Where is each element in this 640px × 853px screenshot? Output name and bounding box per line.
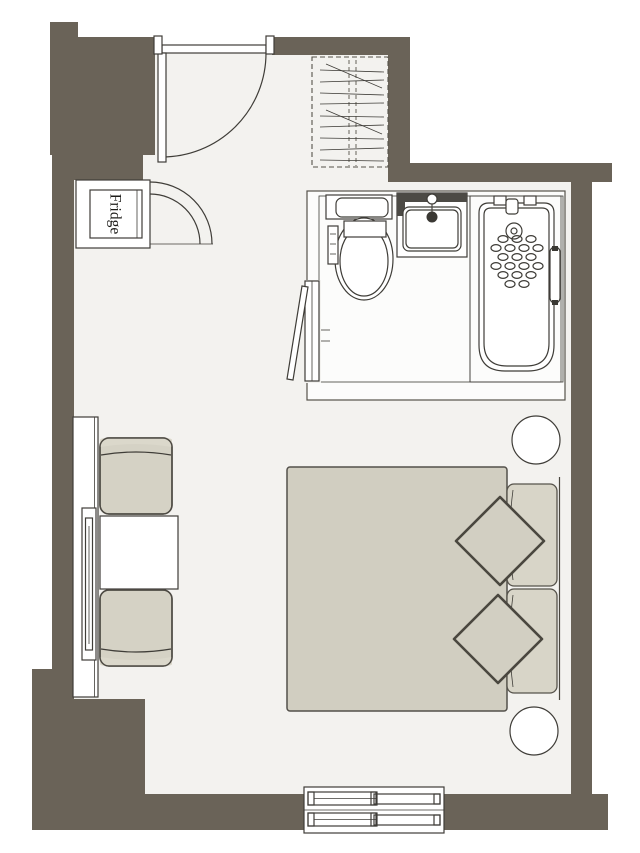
floor-plan: Fridge xyxy=(0,0,640,853)
grab-bar-mount-bottom xyxy=(552,300,558,305)
entry-door-leaf xyxy=(158,53,166,162)
bed-duvet xyxy=(287,467,507,711)
entry-door-stop-right xyxy=(266,36,274,54)
entry-door-stop-left xyxy=(154,36,162,54)
entry-door-lintel xyxy=(162,45,266,53)
chair-bottom-seat xyxy=(100,590,172,666)
wall-closet-right xyxy=(388,55,410,167)
chair-top xyxy=(100,438,172,514)
wall-bottom-left-block xyxy=(32,699,145,794)
fridge-label: Fridge xyxy=(106,194,123,235)
bathroom xyxy=(287,191,565,400)
wall-top-left-block xyxy=(50,37,155,155)
toilet-tank-inner xyxy=(336,198,388,217)
window xyxy=(304,787,444,833)
bathtub-faucet-left xyxy=(494,196,506,205)
wall-top-left-pillar xyxy=(50,22,78,39)
bathtub-spout xyxy=(506,199,518,214)
wall-top-right xyxy=(388,163,612,182)
sink xyxy=(397,193,467,257)
sink-faucet-lever xyxy=(427,212,438,223)
bathtub-grab-bar xyxy=(550,247,560,303)
wall-right xyxy=(571,182,592,794)
chair-bottom xyxy=(100,590,172,666)
wall-bottom-left-jut xyxy=(32,669,74,699)
wall-top-center xyxy=(272,37,410,55)
bathtub xyxy=(470,196,563,382)
floor-plan-drawing: Fridge xyxy=(0,0,640,853)
bed xyxy=(287,467,560,711)
grab-bar-mount-top xyxy=(552,246,558,251)
toilet-seat-hinge xyxy=(344,221,386,237)
stool-top xyxy=(512,416,560,464)
side-table xyxy=(100,516,178,589)
tv-area: TV xyxy=(73,417,178,697)
bathtub-faucet-right xyxy=(524,196,536,205)
chair-top-seat xyxy=(100,438,172,514)
stool-bottom xyxy=(510,707,558,755)
wall-left xyxy=(52,155,74,669)
sink-faucet xyxy=(427,194,437,204)
toilet-control-panel xyxy=(328,226,338,264)
